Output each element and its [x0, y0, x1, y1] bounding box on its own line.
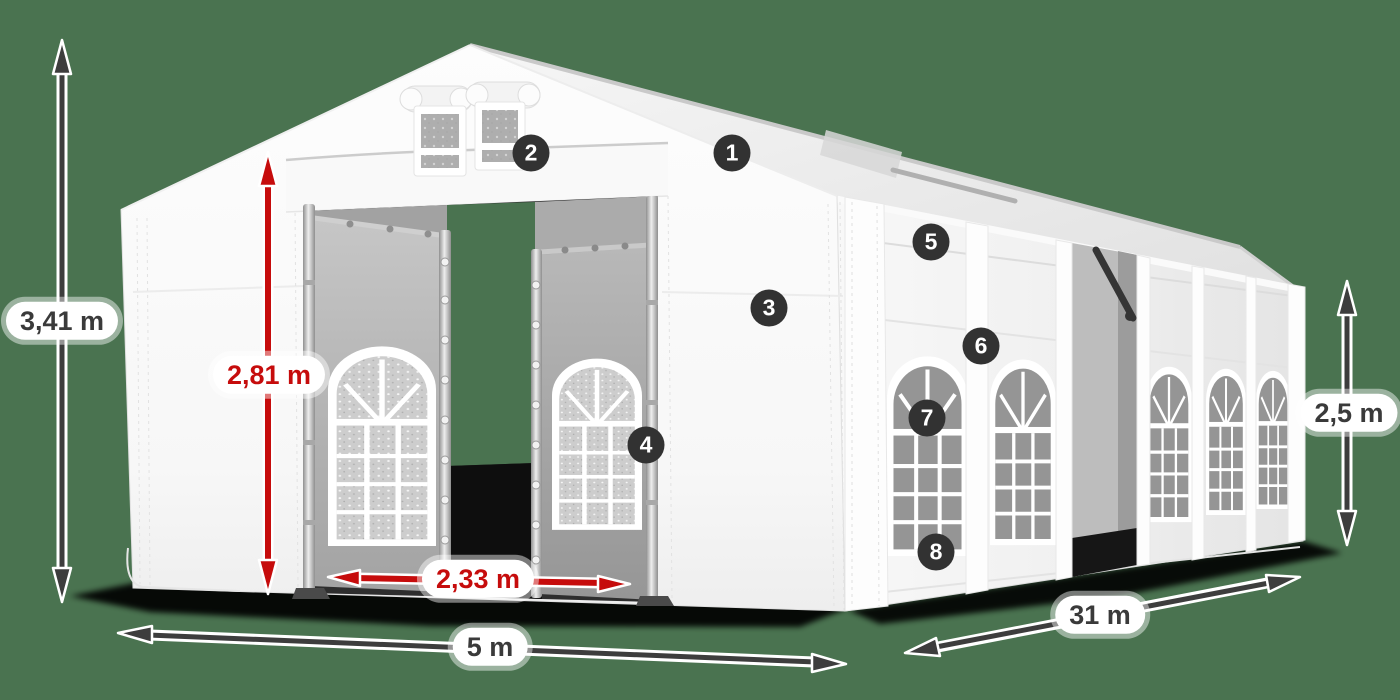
side-window-4 [1206, 369, 1246, 515]
side-window-5 [1256, 371, 1290, 509]
front-width-value: 5 m [467, 632, 514, 662]
door-window-left [328, 346, 436, 546]
badge-7-number: 7 [921, 405, 934, 432]
badge-5-number: 5 [925, 229, 938, 256]
entrance-door-right [538, 243, 656, 601]
label-side-length: 31 m [1055, 596, 1145, 634]
side-length-value: 31 m [1069, 600, 1131, 630]
feature-badge-3: 3 [751, 290, 788, 327]
tent-illustration [0, 0, 1400, 700]
label-front-width: 5 m [453, 628, 528, 666]
entrance-see-through [447, 202, 535, 466]
badge-2-number: 2 [525, 140, 538, 167]
feature-badge-8: 8 [918, 534, 955, 571]
badge-6-number: 6 [975, 333, 988, 360]
feature-badge-2: 2 [513, 135, 550, 172]
side-door-opening [1072, 243, 1137, 577]
vent-window-left [414, 106, 466, 176]
label-side-height: 2,5 m [1300, 394, 1397, 432]
label-entrance-height: 2,81 m [213, 356, 325, 394]
side-window-1 [887, 356, 968, 556]
tent-dimension-diagram: 3,41 m 2,81 m 2,33 m 5 m 31 m 2,5 m 1 2 … [0, 0, 1400, 700]
side-window-3 [1146, 367, 1192, 522]
badge-8-number: 8 [930, 539, 943, 566]
side-window-2 [990, 359, 1056, 545]
entrance-width-value: 2,33 m [436, 564, 520, 594]
badge-1-number: 1 [726, 140, 739, 167]
label-entrance-width: 2,33 m [422, 560, 534, 598]
feature-badge-7: 7 [909, 400, 946, 437]
feature-badge-5: 5 [913, 224, 950, 261]
entrance-door-left [311, 218, 447, 592]
entrance-height-value: 2,81 m [227, 360, 311, 390]
feature-badge-4: 4 [628, 427, 665, 464]
total-height-value: 3,41 m [20, 306, 104, 336]
feature-badge-6: 6 [963, 328, 1000, 365]
badge-3-number: 3 [763, 295, 776, 322]
side-height-value: 2,5 m [1314, 398, 1383, 428]
tent-entrance [292, 196, 674, 606]
badge-4-number: 4 [640, 432, 653, 459]
label-total-height: 3,41 m [6, 302, 118, 340]
feature-badge-1: 1 [714, 135, 751, 172]
